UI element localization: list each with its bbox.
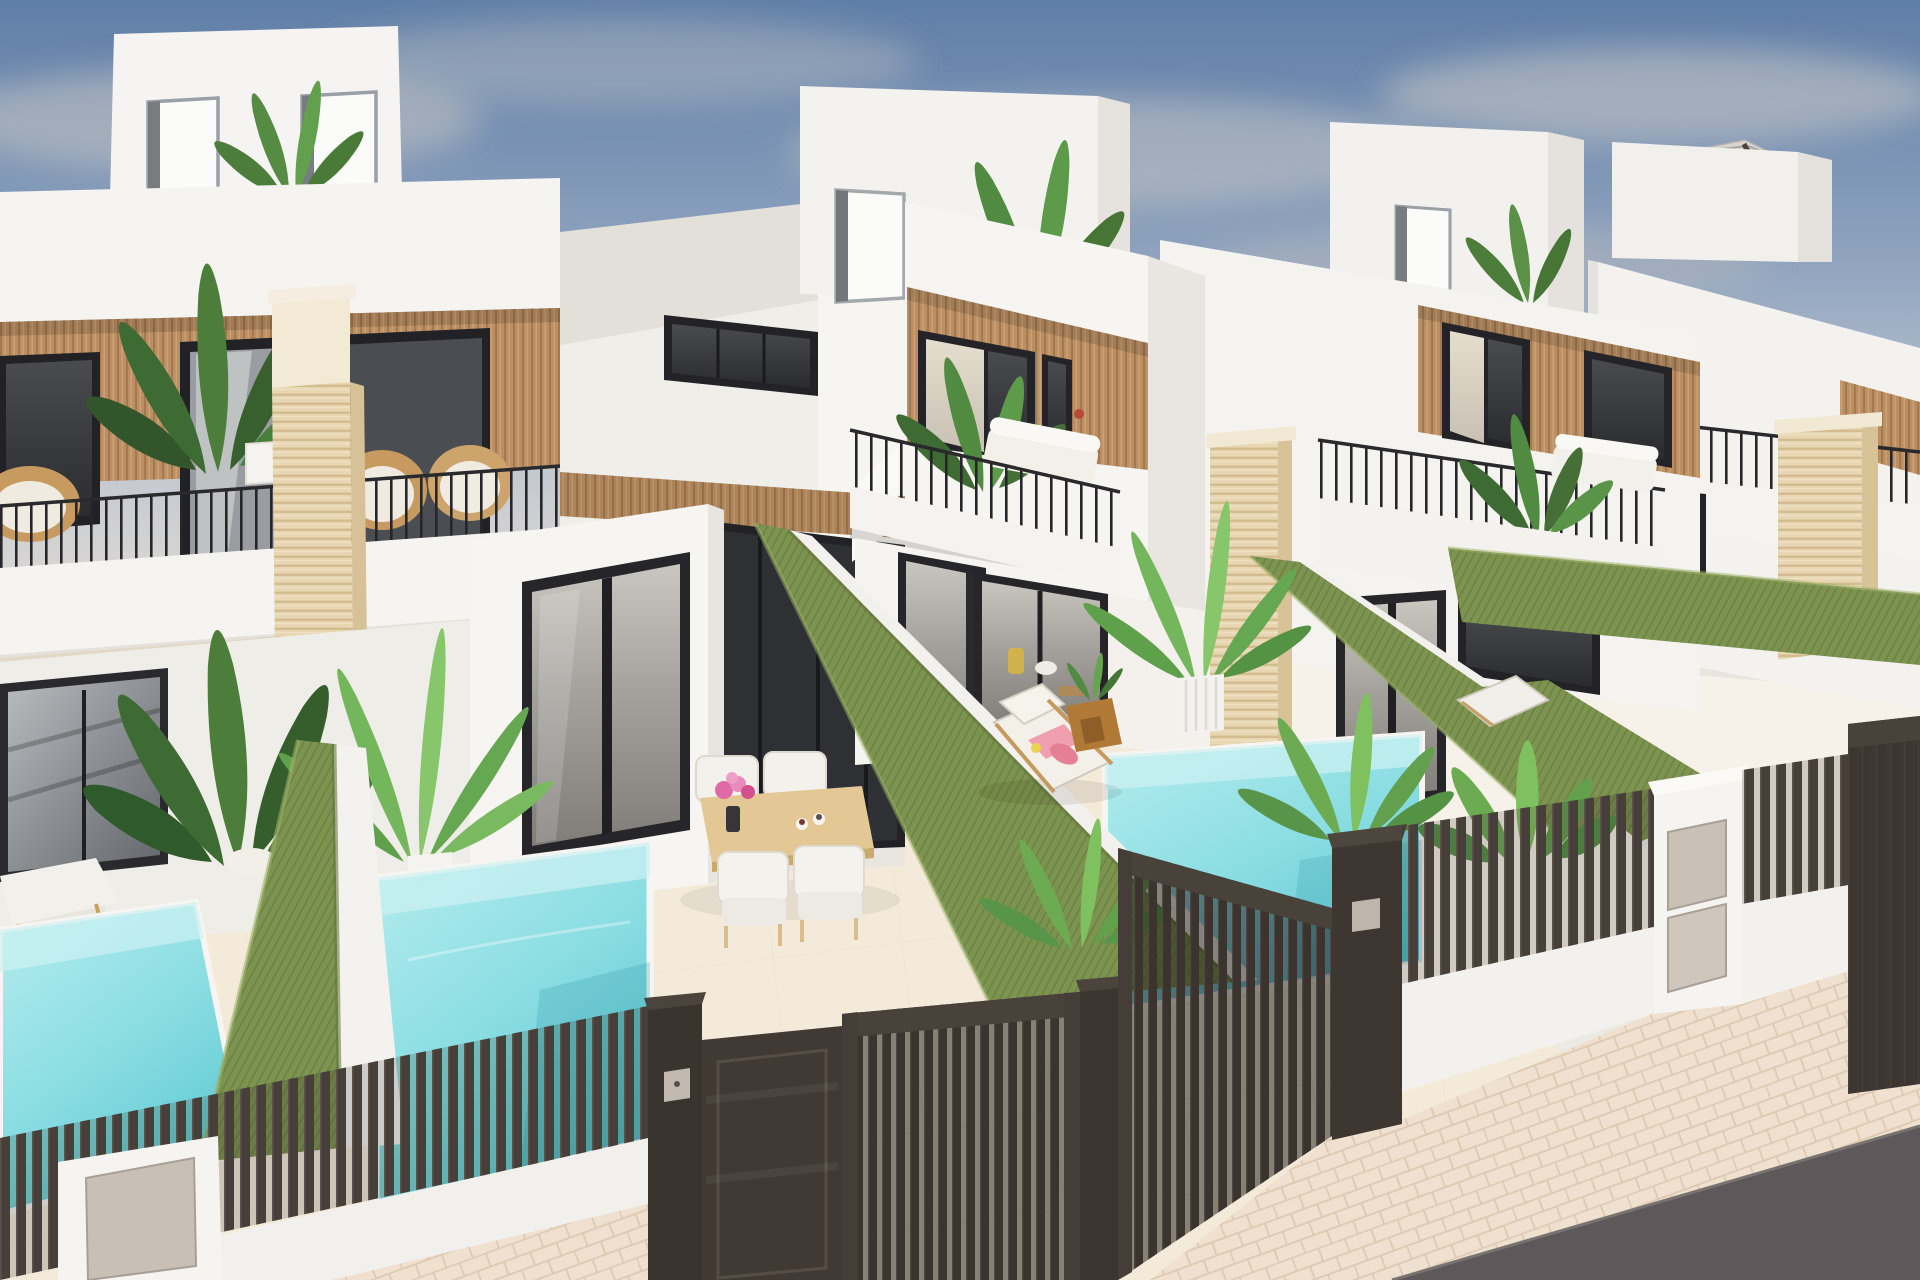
gate-villa-4 — [1848, 716, 1920, 1094]
mail-panel — [86, 1158, 196, 1280]
pedestrian-gate — [702, 1026, 842, 1280]
villa-4-upper-volume — [1612, 142, 1798, 262]
mail-pillar-right — [1648, 766, 1748, 1014]
villa-1-roof-bulkhead — [110, 26, 402, 204]
mail-panel — [1668, 820, 1726, 910]
gate-pillar-1 — [1076, 976, 1122, 1280]
interior-table — [1035, 661, 1057, 675]
architectural-render — [0, 0, 1920, 1280]
keypad-pillar — [644, 992, 706, 1280]
driveway-gate-1 — [842, 992, 1080, 1280]
villa-1-ground-door — [522, 552, 690, 858]
yellow-accessory — [1031, 743, 1041, 753]
utility-panel — [1668, 904, 1726, 992]
gate-pillar-2 — [1327, 824, 1407, 1140]
bulkhead-door — [836, 190, 904, 302]
bulkhead-door — [148, 98, 218, 196]
decor-red-vase — [1074, 409, 1084, 419]
keypad — [1352, 898, 1380, 932]
render-stage — [0, 0, 1920, 1280]
neighbor-glass-door — [0, 668, 168, 882]
interior-chair — [1008, 648, 1024, 674]
